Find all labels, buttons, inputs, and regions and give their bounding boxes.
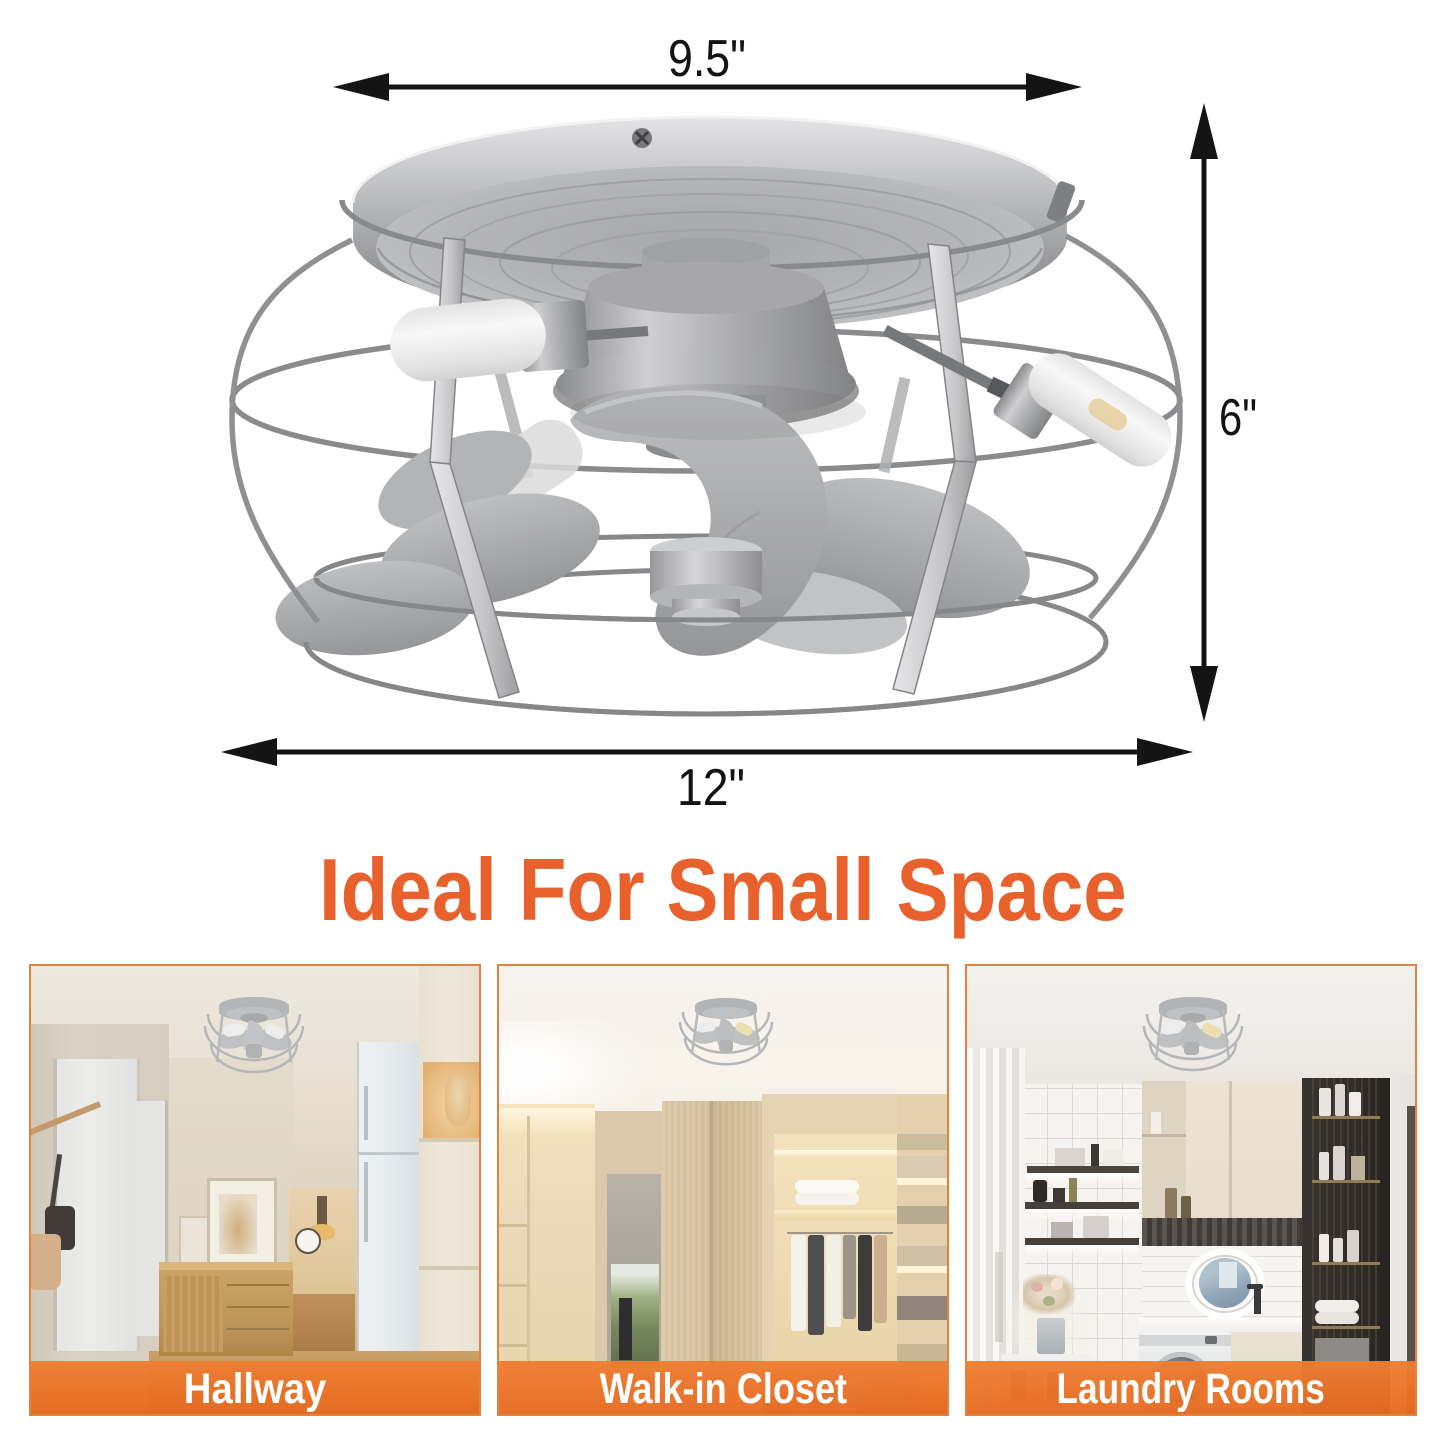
svg-text:6": 6" — [1219, 389, 1257, 447]
svg-text:12": 12" — [677, 759, 745, 817]
svg-text:9.5": 9.5" — [668, 30, 746, 88]
